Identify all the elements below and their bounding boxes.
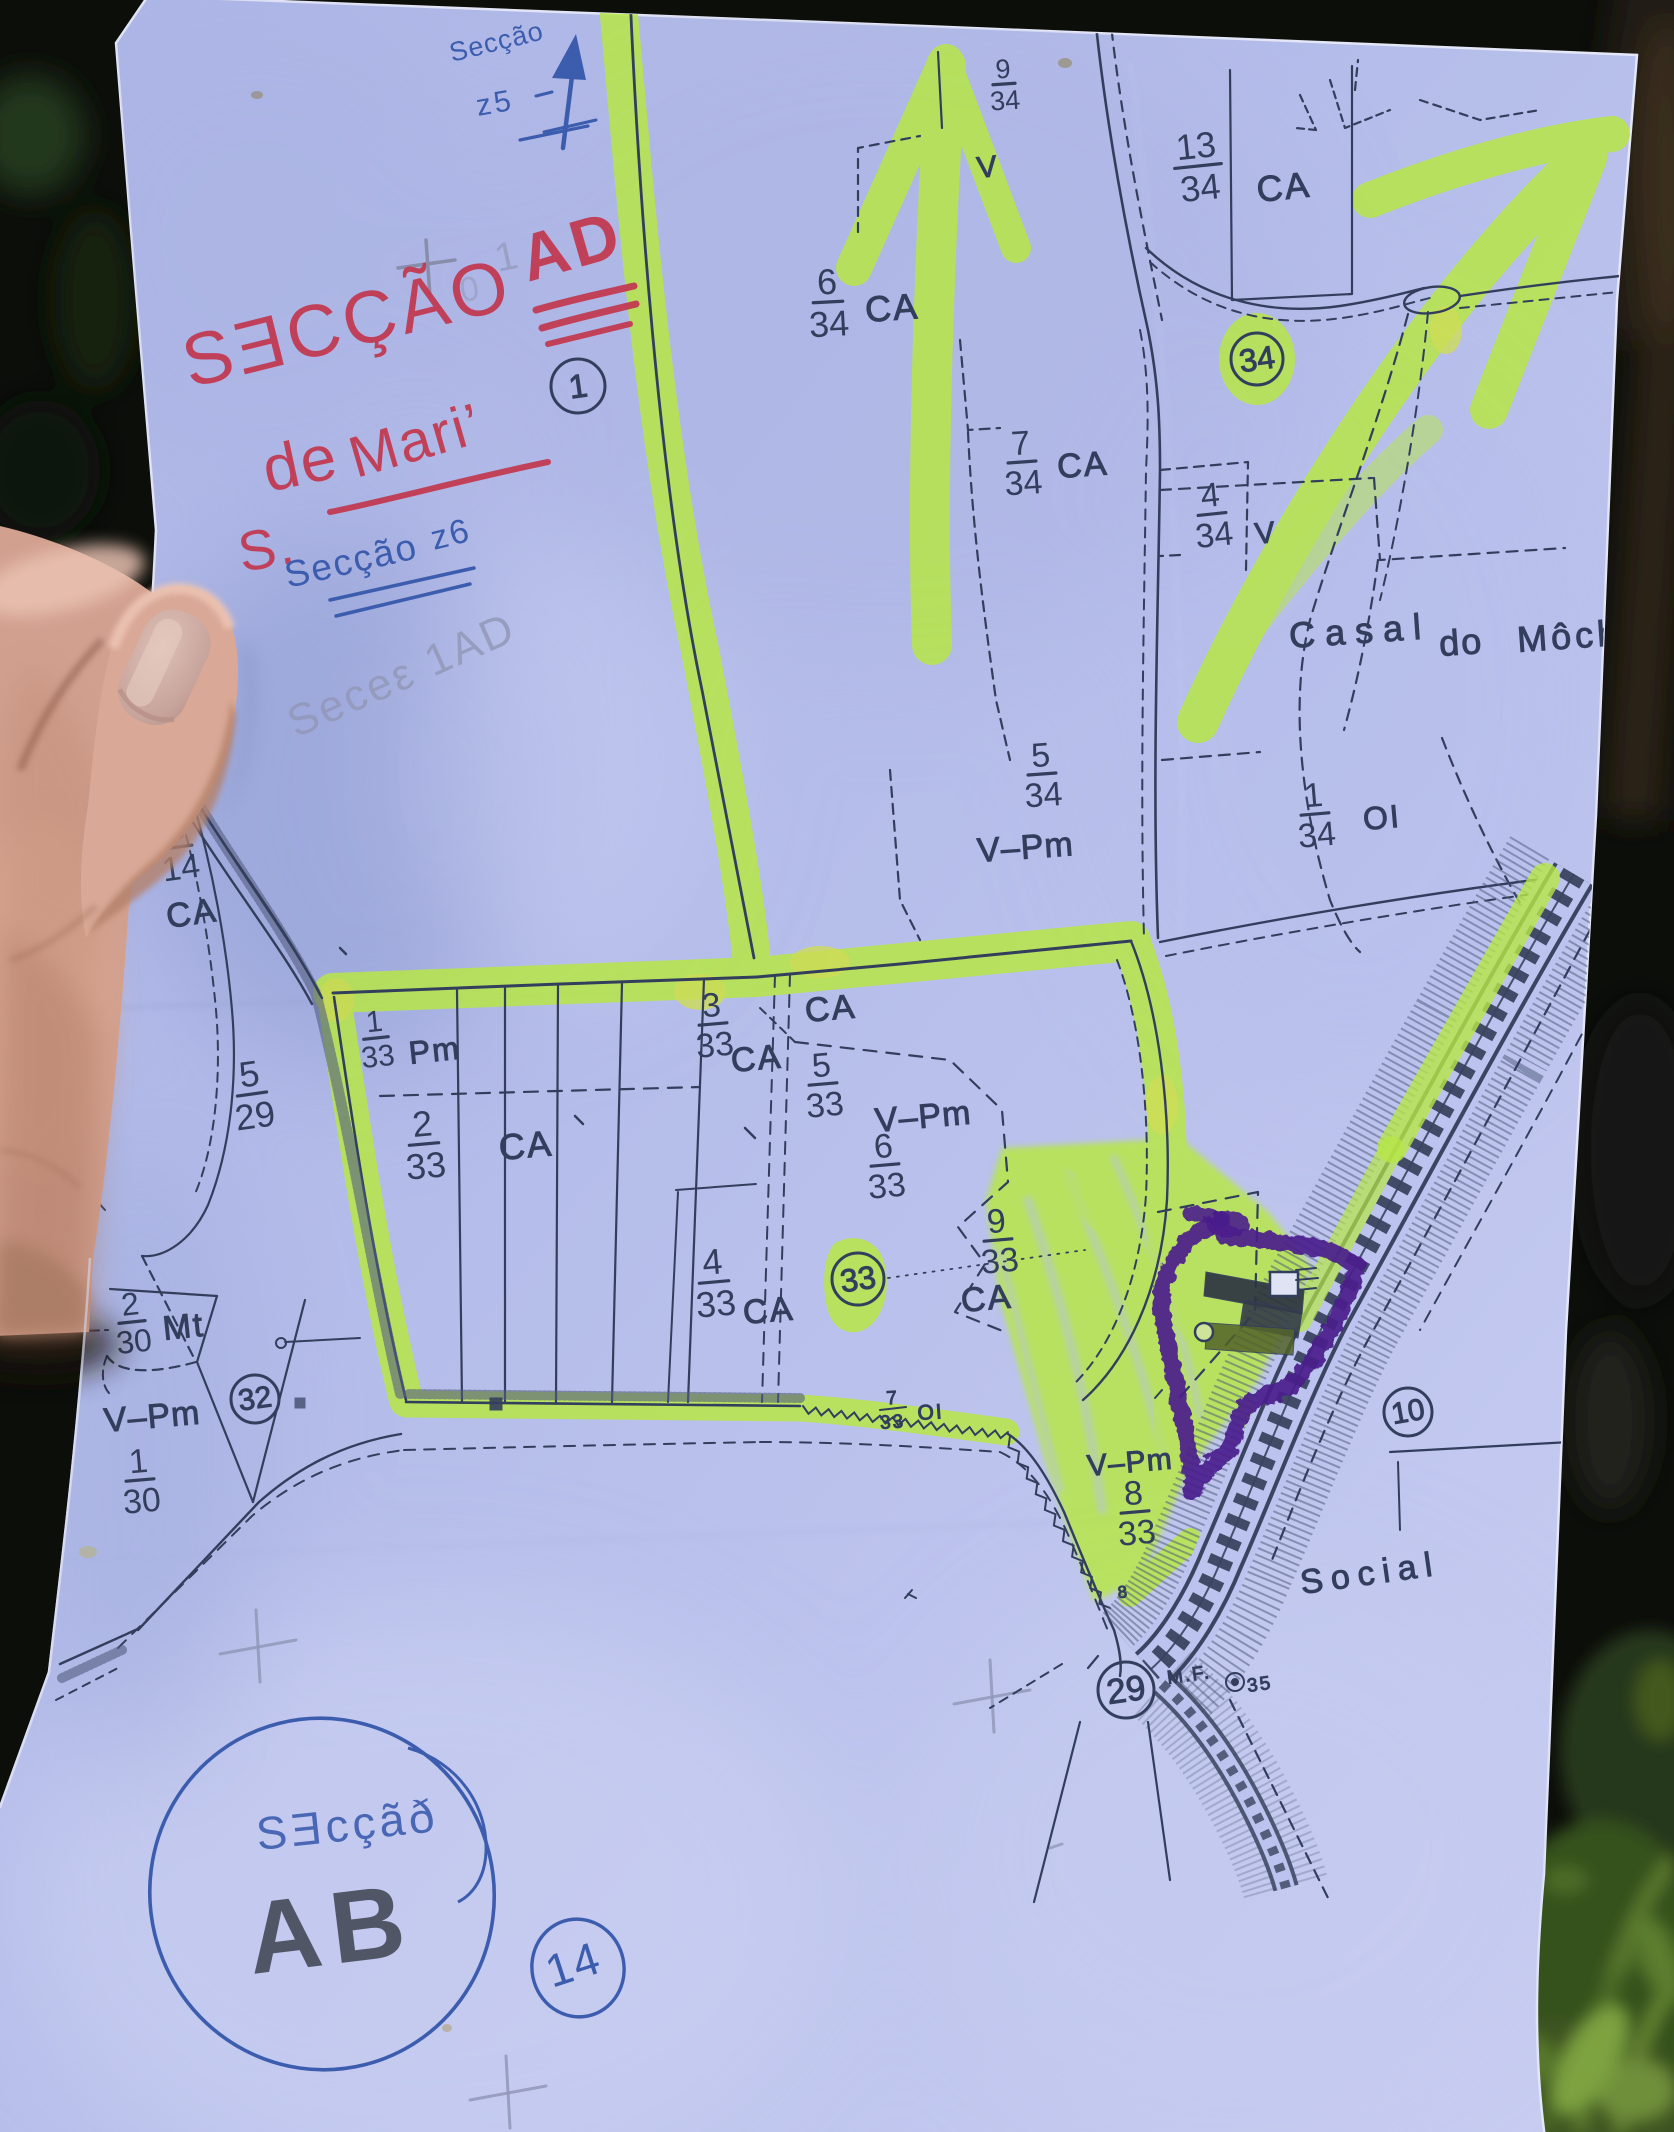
svg-text:2: 2: [119, 1285, 140, 1323]
svg-text:32: 32: [236, 1380, 274, 1417]
svg-text:CA: CA: [959, 1278, 1013, 1320]
svg-text:10: 10: [1389, 1393, 1428, 1431]
svg-text:CA: CA: [741, 1290, 795, 1332]
svg-text:Mt: Mt: [161, 1306, 207, 1348]
svg-text:34: 34: [989, 85, 1021, 117]
svg-text:33: 33: [804, 1085, 845, 1126]
svg-text:6: 6: [816, 261, 838, 303]
svg-text:33: 33: [404, 1143, 447, 1187]
svg-text:2: 2: [410, 1102, 434, 1145]
svg-text:3: 3: [700, 986, 722, 1026]
svg-text:V–Pm: V–Pm: [976, 825, 1075, 870]
svg-text:CA: CA: [729, 1038, 783, 1080]
svg-text:34: 34: [1237, 339, 1277, 380]
svg-text:4: 4: [1199, 476, 1222, 516]
svg-text:AB: AB: [241, 1862, 421, 1996]
svg-text:do: do: [1438, 620, 1485, 664]
svg-text:13: 13: [1174, 123, 1218, 168]
svg-text:1: 1: [1302, 776, 1324, 816]
svg-text:5: 5: [1030, 736, 1052, 775]
svg-text:1: 1: [127, 1442, 149, 1482]
svg-text:33: 33: [866, 1166, 907, 1207]
svg-text:V: V: [1253, 516, 1278, 551]
svg-text:34: 34: [1003, 463, 1043, 504]
svg-text:CA: CA: [1056, 444, 1110, 485]
svg-text:OI: OI: [917, 1400, 945, 1425]
svg-text:CA: CA: [164, 891, 220, 936]
svg-text:33: 33: [979, 1241, 1020, 1282]
svg-text:29: 29: [232, 1092, 277, 1138]
svg-text:de: de: [256, 420, 345, 506]
svg-text:9: 9: [994, 54, 1011, 85]
svg-text:30: 30: [114, 1322, 153, 1362]
svg-text:4: 4: [700, 1240, 724, 1283]
svg-text:CA: CA: [864, 285, 921, 330]
svg-text:34: 34: [1193, 514, 1235, 556]
svg-text:Pm: Pm: [407, 1030, 462, 1071]
svg-text:CA: CA: [1255, 164, 1313, 210]
svg-text:34: 34: [1296, 815, 1337, 856]
svg-text:34: 34: [1023, 775, 1063, 816]
svg-text:33: 33: [694, 1281, 737, 1325]
svg-text:33: 33: [360, 1039, 397, 1075]
svg-text:6: 6: [872, 1127, 894, 1167]
svg-text:z5: z5: [473, 84, 516, 123]
svg-text:34: 34: [808, 302, 850, 345]
svg-text:33: 33: [1116, 1513, 1157, 1554]
svg-text:8: 8: [1117, 1582, 1130, 1602]
svg-text:7: 7: [1010, 424, 1032, 463]
svg-text:35: 35: [1246, 1673, 1274, 1697]
svg-text:34: 34: [1178, 165, 1222, 210]
svg-text:8: 8: [1122, 1474, 1144, 1514]
svg-text:CA: CA: [497, 1122, 554, 1168]
svg-text:CA: CA: [803, 988, 857, 1030]
svg-text:9: 9: [985, 1202, 1007, 1242]
svg-text:V: V: [975, 150, 1000, 185]
svg-text:33: 33: [879, 1411, 906, 1434]
svg-text:OI: OI: [1361, 798, 1402, 837]
svg-text:7: 7: [886, 1388, 900, 1410]
svg-text:33: 33: [838, 1259, 878, 1300]
svg-text:1: 1: [364, 1005, 384, 1040]
svg-text:30: 30: [121, 1481, 162, 1522]
svg-text:5: 5: [810, 1046, 832, 1086]
svg-text:29: 29: [1104, 1668, 1148, 1712]
